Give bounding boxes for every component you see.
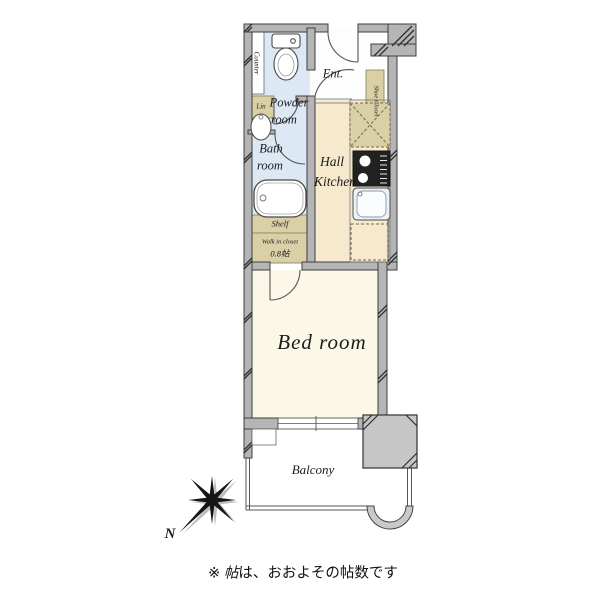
footnote-prefix: ※ — [208, 566, 224, 582]
entrance-label: Ent. — [323, 67, 343, 80]
refrigerator-space — [350, 103, 390, 147]
hall-kitchen-label-2: Kitchen — [314, 175, 356, 189]
pillar-block — [363, 415, 417, 468]
footnote: ※ 帖は、おおよその帖数です — [208, 562, 398, 583]
wall-bedroom-bottom-left — [244, 418, 278, 429]
walk-in-closet-size: 0.8帖 — [270, 250, 289, 259]
bath-room-label-2: room — [257, 159, 283, 172]
shelf-label: Shelf — [272, 220, 289, 229]
bathtub-icon — [254, 180, 306, 217]
powder-room-label-2: room — [271, 113, 297, 126]
hall-kitchen-label-1: Hall — [320, 155, 344, 169]
kitchen-sink-icon — [353, 188, 390, 220]
bedroom-label: Bed room — [277, 331, 366, 353]
balcony-round-ornament — [367, 506, 413, 529]
compass-icon — [180, 476, 240, 535]
wall-corner-cap — [371, 44, 416, 56]
bath-room-label-1: Bath — [259, 142, 283, 155]
linen-label: Lin — [256, 103, 265, 110]
vanity-sink-icon — [251, 114, 271, 140]
toilet-icon — [272, 34, 300, 80]
floorplan-page: Counter Lin Powder room Ent. Shoe Closet… — [0, 0, 600, 600]
balcony-window — [278, 416, 358, 431]
counter-label: Counter — [252, 52, 259, 75]
wall-top-right — [358, 24, 388, 32]
north-label: N — [165, 527, 176, 543]
powder-room-label-1: Powder — [270, 96, 309, 109]
balcony-step — [252, 429, 276, 445]
shoe-closet-label: Shoe Closet — [372, 86, 379, 117]
footnote-rest: は、おおよその帖数です — [238, 566, 398, 582]
wall-divider-top — [307, 28, 315, 70]
floorplan-graphic — [0, 0, 600, 600]
walk-in-closet-label: Walk in closet — [262, 240, 298, 247]
balcony-label: Balcony — [292, 463, 335, 477]
wall-left — [244, 24, 252, 458]
footnote-unit: 帖 — [224, 566, 239, 582]
stove-icon — [353, 151, 390, 186]
wall-bedroom-top-left — [252, 262, 270, 270]
wall-right-bedroom — [378, 262, 387, 418]
